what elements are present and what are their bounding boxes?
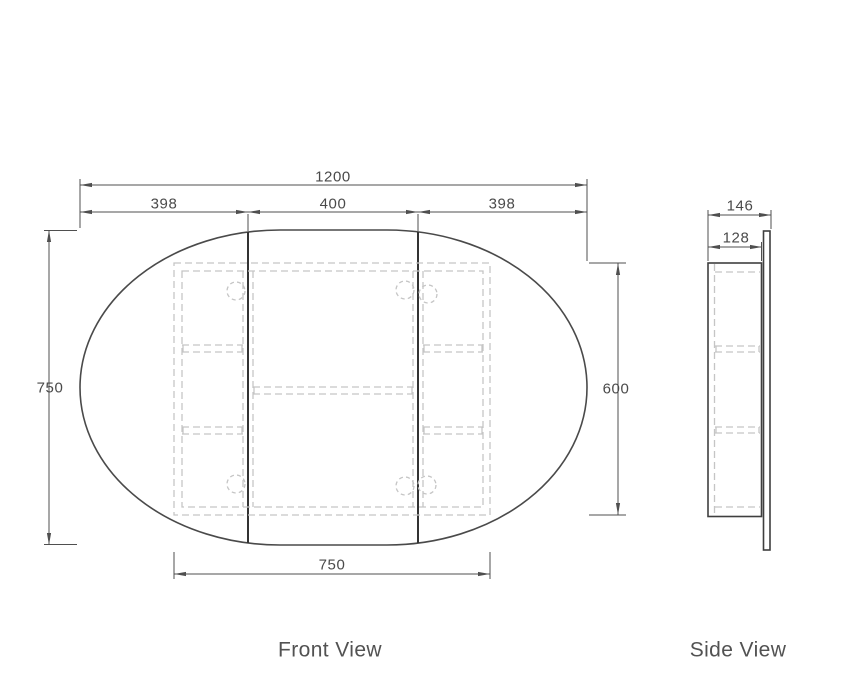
dim-mirror-height: 750 xyxy=(37,381,64,396)
side-mirror-panel xyxy=(764,231,771,550)
technical-drawing-canvas: 1200 398 400 398 750 600 750 146 128 Fro… xyxy=(0,0,842,700)
side-cabinet-body xyxy=(708,263,762,517)
side-view-label: Side View xyxy=(690,640,787,661)
shelf-end-ticks xyxy=(183,345,482,434)
dim-cabinet-width: 750 xyxy=(319,558,346,573)
dim-door-right-width: 398 xyxy=(489,197,516,212)
dim-door-left-width: 398 xyxy=(151,197,178,212)
front-dimension-lines xyxy=(49,185,618,574)
dim-cabinet-depth: 128 xyxy=(723,231,750,246)
dim-door-center-width: 400 xyxy=(320,197,347,212)
dim-cabinet-height: 600 xyxy=(603,382,630,397)
side-view-solid-outline xyxy=(708,231,770,550)
side-view-hidden-lines xyxy=(715,264,761,514)
side-shelf-end-ticks xyxy=(716,346,759,433)
dim-overall-depth: 146 xyxy=(727,199,754,214)
cabinet-hidden-outline xyxy=(174,263,490,515)
shelf-hidden-lines xyxy=(182,345,483,434)
hinge-circles xyxy=(227,281,437,495)
dim-overall-width: 1200 xyxy=(315,170,351,185)
front-extension-lines xyxy=(44,179,626,579)
drawing-linework xyxy=(0,0,842,700)
front-view-label: Front View xyxy=(278,640,382,661)
